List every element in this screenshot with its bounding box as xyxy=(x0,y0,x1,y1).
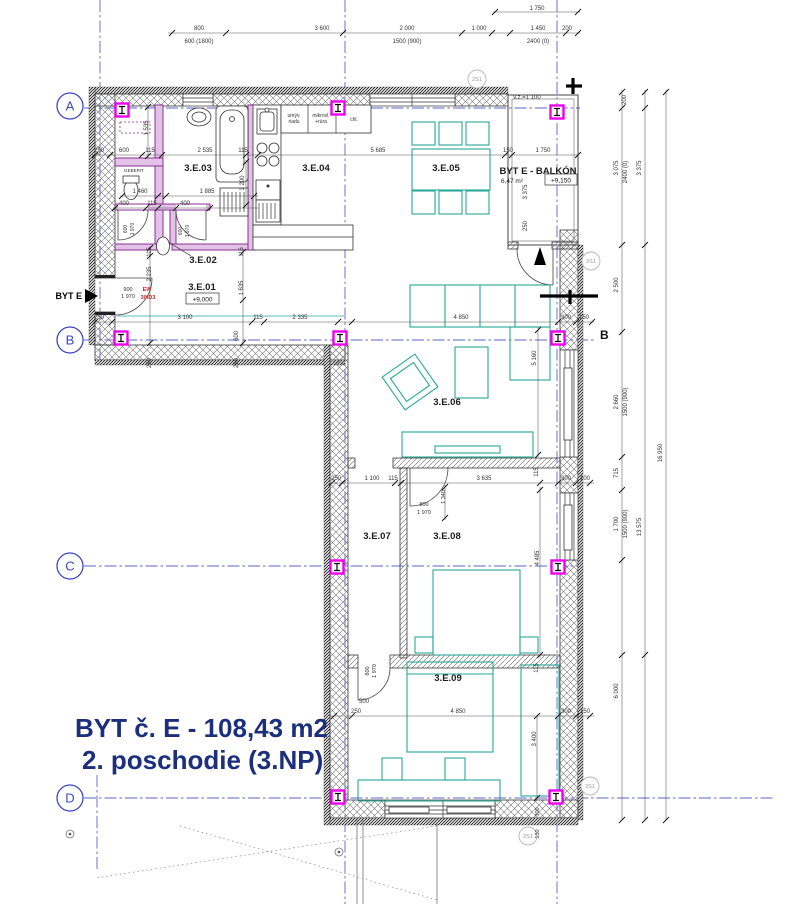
dining-chair xyxy=(466,122,489,145)
room-label-3e09: 3.E.09 xyxy=(434,673,461,684)
axis-marker-icon xyxy=(552,561,565,574)
dim-r-13575: 13 575 xyxy=(637,517,643,536)
dim-wc-115: 115 xyxy=(147,201,157,207)
oven xyxy=(256,180,280,200)
dim-r-6000: 6 000 xyxy=(614,683,620,699)
dim-balc-1750: 1 750 xyxy=(535,148,551,154)
room-label-3e06: 3.E.06 xyxy=(433,397,460,408)
dim-door-302-600: 600 xyxy=(178,227,184,236)
dim-bath-3200: 3 200 xyxy=(240,175,246,191)
dim-balc-3375: 3 375 xyxy=(523,184,529,200)
fixtures xyxy=(120,106,248,255)
dim-308-4485: 4 485 xyxy=(535,550,541,566)
dim-door308-800: 800 xyxy=(419,502,428,508)
room-label-3e05: 3.E.05 xyxy=(432,163,460,174)
dim-door308-1340: 1 340 xyxy=(441,490,447,504)
dim-top-800: 800 xyxy=(194,26,205,32)
dim-d-300: 300 xyxy=(561,709,572,715)
dim-r-200: 200 xyxy=(622,94,628,105)
dining-chair xyxy=(439,191,462,214)
room-label-3e03: 3.E.03 xyxy=(184,163,211,174)
dim-c-115v: 115 xyxy=(534,467,540,477)
dim-r-1500-900b: 1500 (900) xyxy=(623,509,629,538)
detail-2s1-c: 2S1 xyxy=(585,784,595,790)
kitchen-dishwasher-2: riadu xyxy=(288,119,299,125)
dim-hall-2235: 2 235 xyxy=(147,266,153,282)
dim-r-1500-900a: 1500 (900) xyxy=(623,387,629,416)
dim-309-500: 500 xyxy=(359,699,370,705)
dim-r-2400-0: 2400 (0) xyxy=(623,161,629,183)
dim-door-302-1970: 1 970 xyxy=(185,225,191,238)
dining-chair xyxy=(466,191,489,214)
fixture-geberit: GEBERIT xyxy=(124,168,144,173)
dim-r-1700: 1 700 xyxy=(614,516,620,532)
axis-marker-icon xyxy=(115,332,128,345)
axis-marker-icon xyxy=(550,791,563,804)
room-label-3e08: 3.E.08 xyxy=(433,531,460,542)
dim-dr-150: 150 xyxy=(535,829,541,838)
dim-top-600-1800: 600 (1800) xyxy=(184,39,213,45)
nightstand xyxy=(415,637,433,653)
dim-c-115a: 115 xyxy=(388,476,398,482)
dim-hall-115b: 115 xyxy=(239,247,245,257)
adjacent-structure xyxy=(66,820,437,904)
room-label-3e02: 3.E.02 xyxy=(189,255,216,266)
detail-2s1-a: 2S1 xyxy=(472,77,482,83)
axis-marker-icon xyxy=(552,332,565,345)
dim-top-1750: 1 750 xyxy=(529,6,545,12)
elevation-balcony: +9,150 xyxy=(551,178,571,185)
grid-label-c: C xyxy=(65,559,74,574)
kitchen-fridge: chl. xyxy=(350,117,358,123)
dim-b-3100: 3 100 xyxy=(177,315,193,321)
dining-chair xyxy=(439,122,462,145)
section-label: B xyxy=(600,328,609,342)
axis-marker-icon xyxy=(332,102,345,115)
dim-wc-1460: 1 460 xyxy=(132,189,148,195)
balcony-entry-arrow-icon xyxy=(534,247,546,265)
sofa-chaise xyxy=(510,327,550,380)
dim-c-1100: 1 100 xyxy=(364,476,380,482)
fire-ew: EW xyxy=(143,287,153,293)
dim-door-wc-600: 600 xyxy=(123,225,129,234)
dim-door309-1970: 1 970 xyxy=(372,664,378,678)
dim-bath-600: 600 xyxy=(119,148,130,154)
dining-chair xyxy=(412,122,435,145)
dim-r-2500: 2 500 xyxy=(614,277,620,293)
dim-hall-115: 115 xyxy=(147,247,153,257)
dim-bath-1535: 1 535 xyxy=(144,120,150,136)
dim-balc-250: 250 xyxy=(523,220,529,231)
grid-label-d: D xyxy=(65,791,74,806)
wardrobe xyxy=(521,665,559,796)
dim-d-4850: 4 850 xyxy=(450,709,466,715)
window-bathroom xyxy=(183,94,213,106)
axis-marker-icon xyxy=(331,561,344,574)
kitchen-counter xyxy=(253,105,371,250)
dim-liv-5160: 5 160 xyxy=(532,350,538,366)
dim-309-3400: 3 400 xyxy=(532,731,538,747)
dim-top-2400-0: 2400 (0) xyxy=(527,39,549,45)
dim-bath-115b: 115 xyxy=(238,148,248,154)
dim-door308-1970: 1 970 xyxy=(417,510,431,516)
window-dining xyxy=(370,94,455,106)
dim-d-150: 150 xyxy=(580,709,591,715)
title-line-2: 2. poschodie (3.NP) xyxy=(82,745,323,775)
title-line-1: BYT č. E - 108,43 m2 xyxy=(75,713,328,743)
dim-dr-300: 300 xyxy=(535,807,541,816)
nightstand xyxy=(520,637,538,653)
blueprint-page: A B C D xyxy=(0,0,795,904)
dim-balc-150: 150 xyxy=(503,148,514,154)
dim-b-115: 115 xyxy=(253,315,263,321)
room-label-3e07: 3.E.07 xyxy=(363,531,390,542)
dim-b-250: 250 xyxy=(94,315,105,321)
dim-top-3600: 3 600 xyxy=(314,26,330,32)
dim-wc-400b: 400 xyxy=(180,201,191,207)
dim-r-715: 715 xyxy=(614,467,620,478)
dim-top-1500-900: 1500 (900) xyxy=(392,39,421,45)
dim-kit-5685: 5 685 xyxy=(370,148,386,154)
dim-c-250: 250 xyxy=(331,476,342,482)
dim-b-600v: 600 xyxy=(234,330,240,341)
elevation-3e01: +9,000 xyxy=(192,297,212,304)
hand-basin xyxy=(157,237,170,255)
dim-b-250v2: 250 xyxy=(234,357,240,368)
dim-r-16950: 16 950 xyxy=(658,443,664,462)
floor-plan-canvas: A B C D xyxy=(0,0,795,904)
dim-b-250v: 250 xyxy=(147,357,153,368)
dim-bath-2535: 2 535 xyxy=(197,148,213,154)
fire-30d3: 30/D3 xyxy=(141,295,156,301)
dining-chair xyxy=(412,191,435,214)
dim-top-2000: 2 000 xyxy=(399,26,415,32)
axis-marker-icon xyxy=(334,332,347,345)
detail-2s1-d: 2S1 xyxy=(523,834,533,840)
grid-label-a: A xyxy=(66,99,75,114)
dim-b-4850: 4 850 xyxy=(453,315,469,321)
dim-entry-900: 900 xyxy=(123,287,132,293)
dim-d-250: 250 xyxy=(351,709,362,715)
dim-c-3635: 3 635 xyxy=(476,476,492,482)
dim-door309-800: 800 xyxy=(365,666,371,675)
room-label-3e01: 3.E.01 xyxy=(188,282,216,293)
dim-b-2335: 2 335 xyxy=(292,315,308,321)
balcony-area: 6,47 m² xyxy=(501,178,524,185)
dim-c-100: 100 xyxy=(580,476,591,482)
bed-1 xyxy=(433,570,520,655)
dim-r-3375: 3 375 xyxy=(637,160,643,176)
coffee-table xyxy=(455,347,488,398)
dim-bath-1885: 1 885 xyxy=(199,189,215,195)
axis-marker-icon xyxy=(332,791,345,804)
room-label-3e04: 3.E.04 xyxy=(302,163,330,174)
desk-chair xyxy=(445,758,465,780)
axis-marker-icon xyxy=(116,104,129,117)
dim-309-115: 115 xyxy=(534,663,540,673)
dim-b-150: 150 xyxy=(579,315,590,321)
dim-bath-250: 250 xyxy=(94,148,105,154)
armchair xyxy=(382,354,438,410)
title-block: BYT č. E - 108,43 m2 2. poschodie (3.NP) xyxy=(75,713,328,775)
axis-marker-icon xyxy=(551,106,564,119)
note-vz: v.z.=1 100 xyxy=(513,95,541,101)
balcony-door xyxy=(517,249,553,285)
dim-top-1450: 1 450 xyxy=(530,26,546,32)
doors xyxy=(95,210,448,700)
grid-bubbles: A B C D xyxy=(57,93,83,811)
dim-b-300: 300 xyxy=(561,315,572,321)
detail-2s1-b: 2S1 xyxy=(586,259,596,265)
kitchen-micro-2: +rúra xyxy=(315,119,327,125)
dim-top-1000: 1 000 xyxy=(471,26,487,32)
stove xyxy=(257,143,267,153)
dim-c-300: 300 xyxy=(561,476,572,482)
dim-hall-1635: 1 635 xyxy=(239,280,245,296)
entry-label: BYT E xyxy=(55,291,82,301)
dim-entry-1970: 1 970 xyxy=(121,294,135,300)
dim-door-wc-1970: 1 970 xyxy=(130,223,136,236)
dim-top-200: 200 xyxy=(562,26,573,32)
dim-bath-115a: 115 xyxy=(145,148,155,154)
dim-r-2660: 2 660 xyxy=(614,394,620,410)
dim-wc-400a: 400 xyxy=(119,201,130,207)
grid-label-b: B xyxy=(66,333,75,348)
desk-chair xyxy=(382,758,402,780)
dim-r-3075: 3 075 xyxy=(614,160,620,176)
